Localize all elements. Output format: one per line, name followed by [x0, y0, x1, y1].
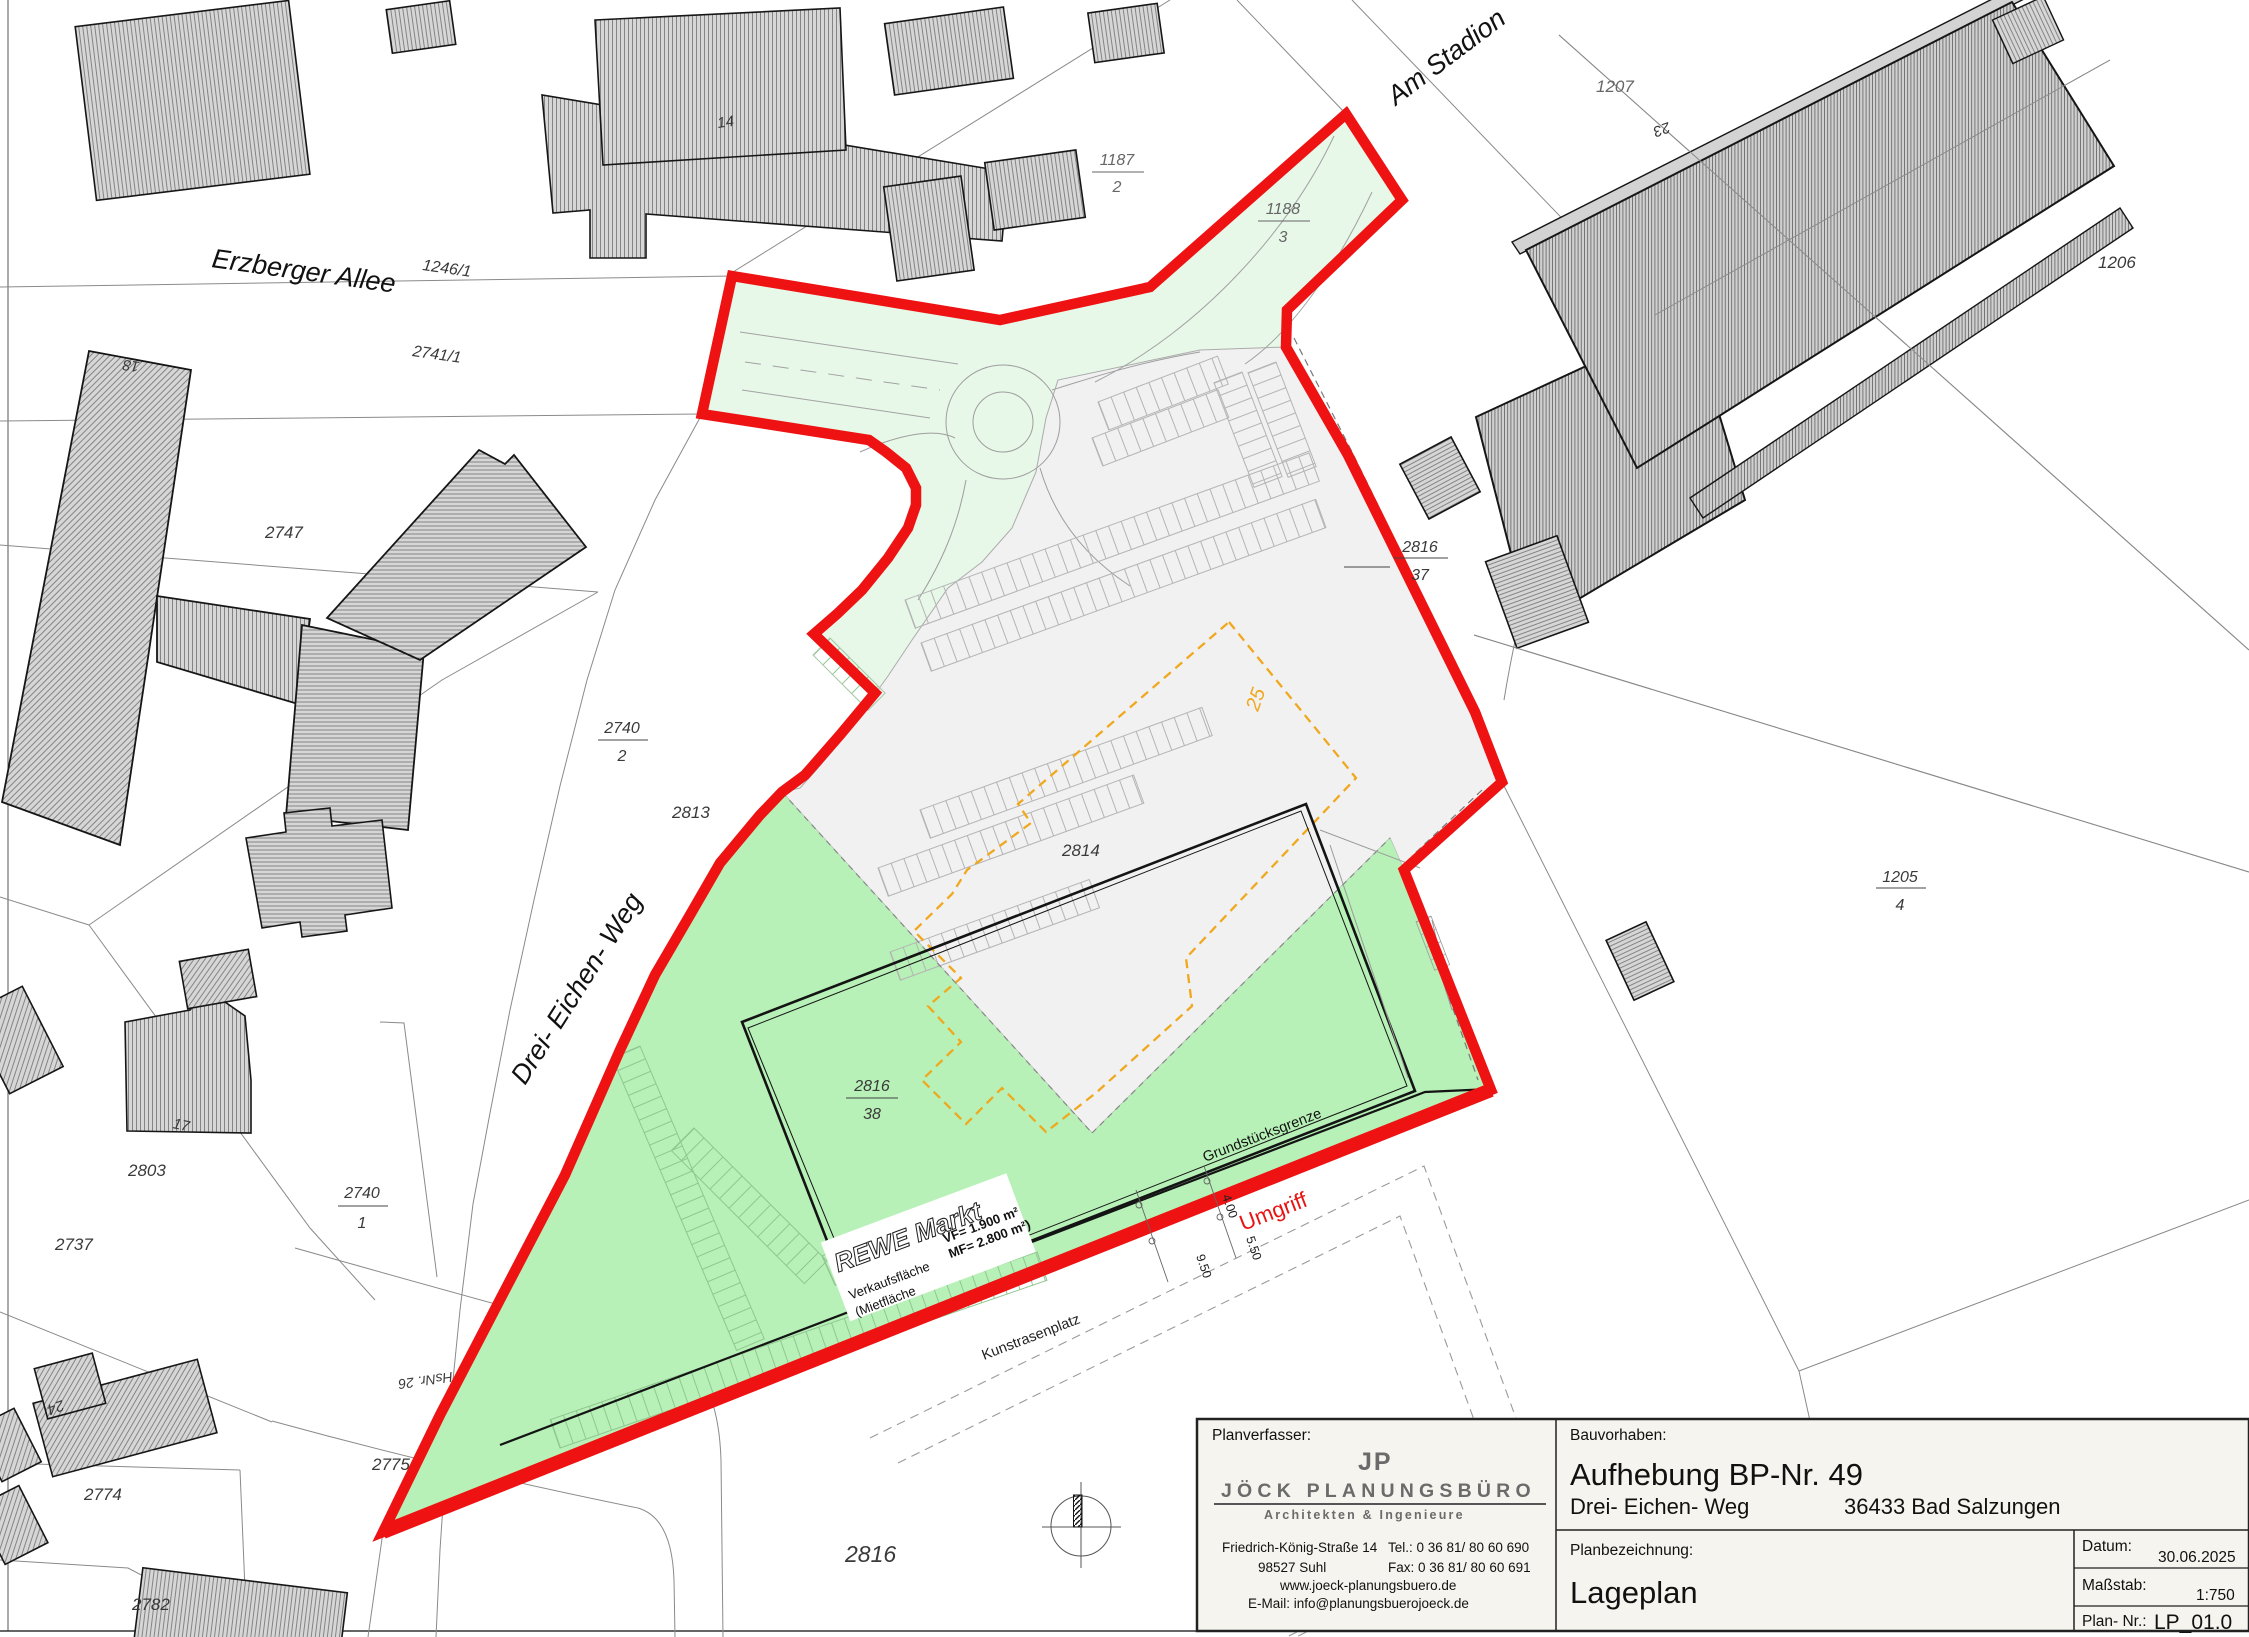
svg-text:Maßstab:: Maßstab:	[2082, 1577, 2147, 1594]
svg-text:Tel.: 0 36 81/ 80 60 690: Tel.: 0 36 81/ 80 60 690	[1388, 1540, 1529, 1555]
svg-text:2814: 2814	[1061, 841, 1100, 860]
svg-text:JP: JP	[1358, 1448, 1393, 1476]
svg-text:www.joeck-planungsbuero.de: www.joeck-planungsbuero.de	[1279, 1578, 1456, 1593]
svg-text:98527 Suhl: 98527 Suhl	[1258, 1560, 1326, 1575]
svg-text:2816: 2816	[853, 1078, 890, 1095]
svg-text:1206: 1206	[2098, 253, 2136, 272]
svg-text:Planverfasser:: Planverfasser:	[1212, 1427, 1311, 1444]
svg-text:1: 1	[358, 1215, 367, 1232]
svg-text:2747: 2747	[264, 523, 303, 542]
svg-text:Bauvorhaben:: Bauvorhaben:	[1570, 1427, 1667, 1444]
svg-text:3: 3	[1279, 229, 1288, 246]
svg-text:Fax: 0 36 81/ 80 60 691: Fax: 0 36 81/ 80 60 691	[1388, 1560, 1531, 1575]
svg-text:2775: 2775	[371, 1455, 410, 1474]
svg-text:1188: 1188	[1266, 201, 1301, 218]
svg-text:2816: 2816	[1401, 539, 1438, 556]
svg-text:37: 37	[1411, 567, 1430, 584]
svg-text:2: 2	[617, 748, 627, 765]
svg-text:36433 Bad Salzungen: 36433 Bad Salzungen	[1844, 1494, 2061, 1519]
svg-text:1:750: 1:750	[2196, 1587, 2235, 1604]
svg-text:2774: 2774	[83, 1485, 122, 1504]
svg-text:E-Mail: info@planungsbuerojoe: E-Mail: info@planungsbuerojoeck.de	[1248, 1596, 1469, 1611]
svg-text:2740: 2740	[343, 1185, 380, 1202]
svg-text:LP_01.0: LP_01.0	[2154, 1611, 2232, 1634]
svg-text:2737: 2737	[54, 1235, 93, 1254]
svg-text:Architekten & Ingenieure: Architekten & Ingenieure	[1264, 1508, 1465, 1522]
svg-text:1205: 1205	[1882, 869, 1918, 886]
svg-text:JÖCK PLANUNGSBÜRO: JÖCK PLANUNGSBÜRO	[1221, 1479, 1536, 1502]
svg-text:14: 14	[716, 113, 735, 132]
svg-text:30.06.2025: 30.06.2025	[2158, 1549, 2236, 1566]
svg-text:1187: 1187	[1100, 152, 1136, 169]
svg-text:2813: 2813	[671, 803, 710, 822]
svg-text:2782: 2782	[131, 1595, 170, 1614]
svg-text:2740: 2740	[603, 720, 640, 737]
svg-text:2803: 2803	[127, 1161, 166, 1180]
svg-text:2816: 2816	[844, 1541, 896, 1567]
svg-text:18: 18	[121, 356, 141, 375]
svg-text:2: 2	[1112, 179, 1122, 196]
svg-text:4: 4	[1896, 897, 1905, 914]
svg-text:Plan- Nr.:: Plan- Nr.:	[2082, 1613, 2147, 1630]
svg-text:Planbezeichnung:: Planbezeichnung:	[1570, 1542, 1693, 1559]
svg-text:38: 38	[863, 1106, 881, 1123]
svg-text:Friedrich-König-Straße 14: Friedrich-König-Straße 14	[1222, 1540, 1378, 1555]
svg-text:Lageplan: Lageplan	[1570, 1575, 1698, 1610]
svg-text:Aufhebung BP-Nr. 49: Aufhebung BP-Nr. 49	[1570, 1457, 1863, 1492]
svg-text:Drei- Eichen- Weg: Drei- Eichen- Weg	[1570, 1494, 1749, 1519]
svg-text:Datum:: Datum:	[2082, 1538, 2132, 1555]
svg-text:1207: 1207	[1596, 77, 1634, 96]
